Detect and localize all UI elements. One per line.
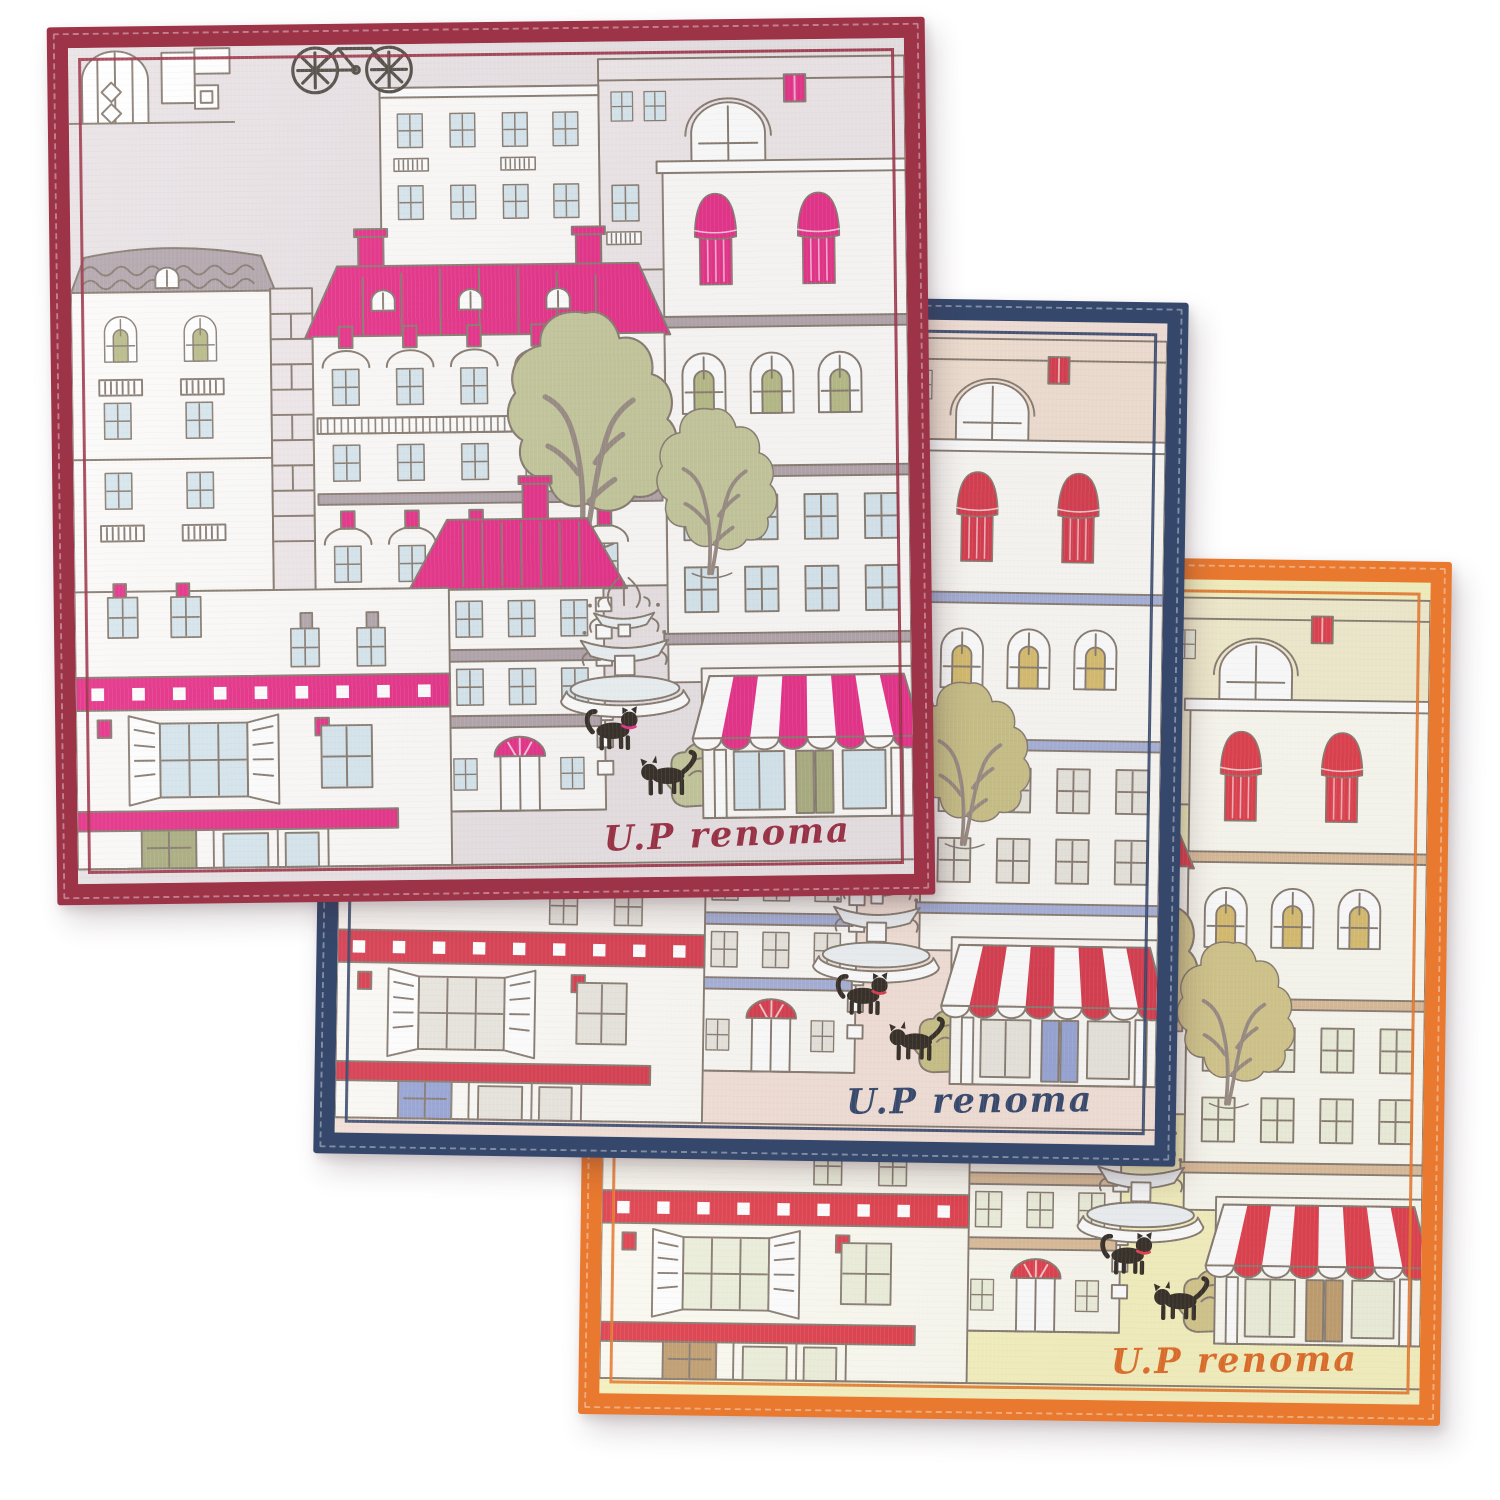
printed-cloth: U.P renoma xyxy=(68,38,914,884)
brand-signature: U.P renoma xyxy=(846,1080,1094,1124)
brand-signature: U.P renoma xyxy=(1111,1339,1359,1383)
handkerchief-burgundy: U.P renoma xyxy=(47,17,936,906)
paris-cityscape-print xyxy=(68,38,914,884)
product-photo-scene: U.P renoma U.P renoma U.P renoma xyxy=(0,0,1500,1500)
